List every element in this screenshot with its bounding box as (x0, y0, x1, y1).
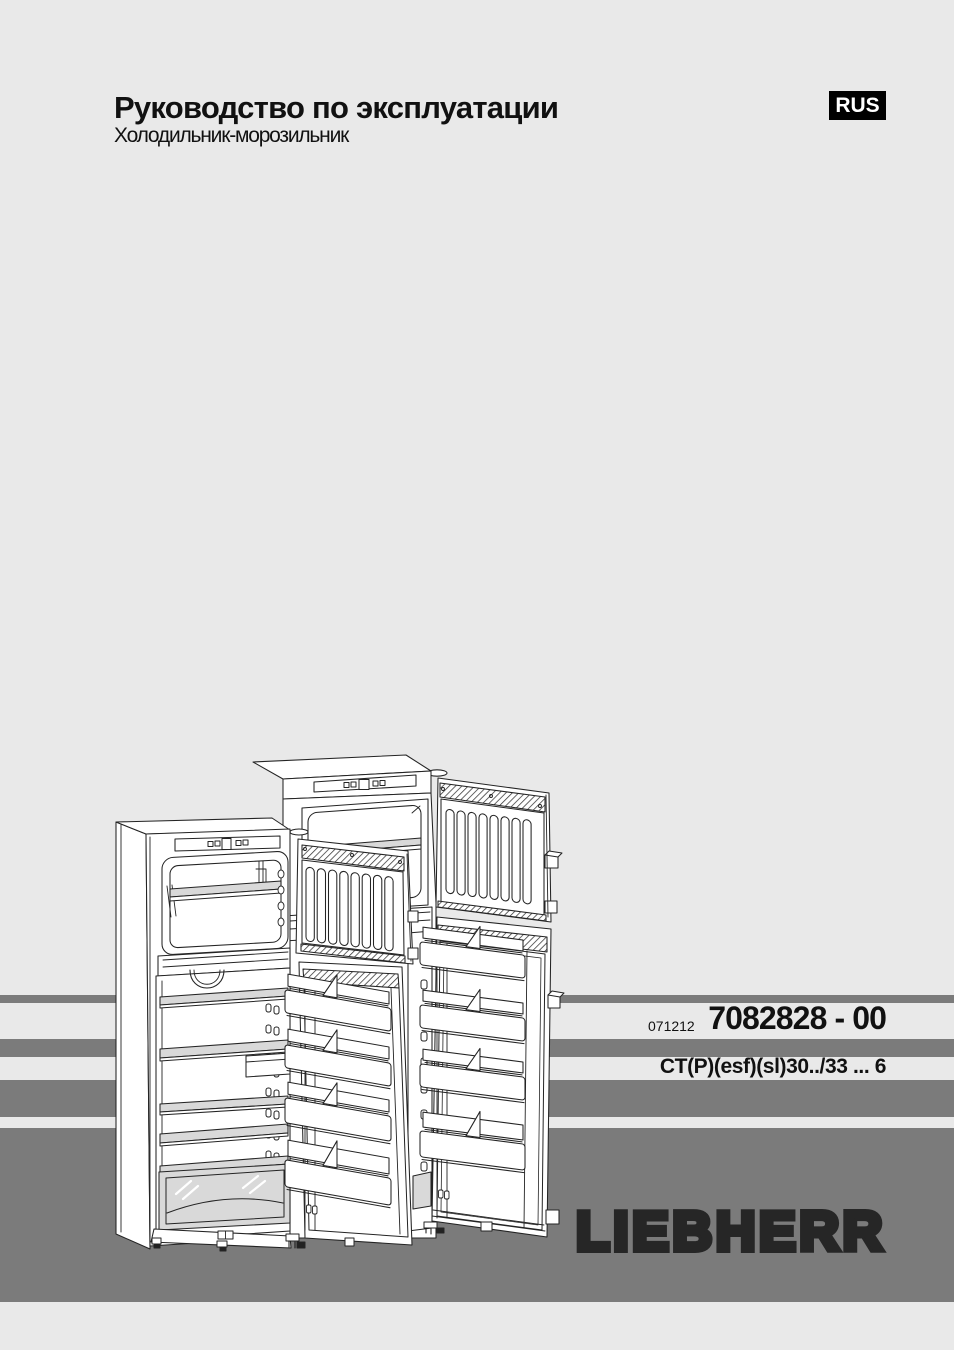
svg-text:LIEBHERR: LIEBHERR (576, 1200, 886, 1262)
